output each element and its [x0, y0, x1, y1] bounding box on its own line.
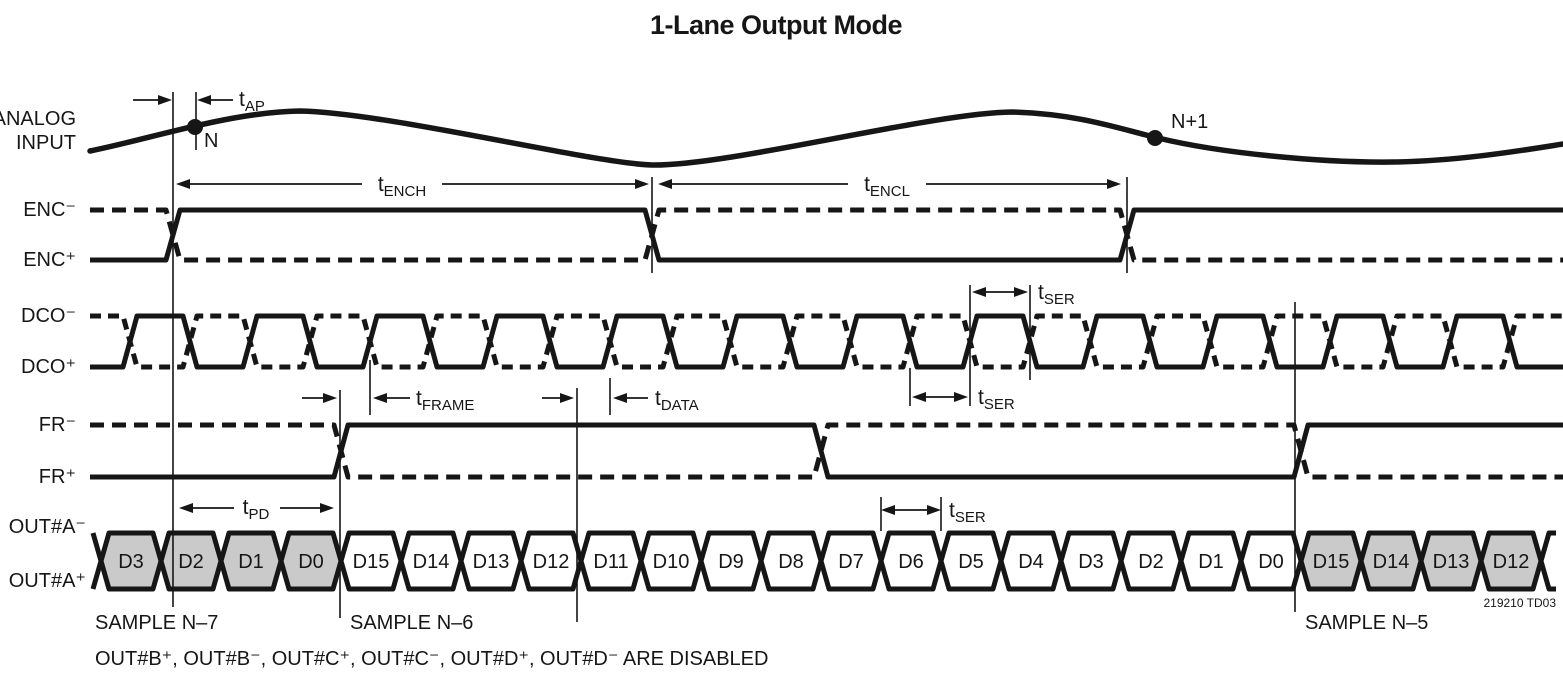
arrowhead-left: [373, 393, 387, 403]
sample-n1-dot: [1147, 130, 1163, 146]
tpd-label: tPD: [243, 496, 270, 523]
out-data-cell-label: D14: [1373, 551, 1410, 573]
tser-lower-annotation: tSER: [912, 386, 1015, 413]
out-lane-cells: D3D2D1D0D15D14D13D12D11D10D9D8D7D6D5D4D3…: [101, 533, 1541, 589]
sample-n6-caption: SAMPLE N–6: [350, 612, 473, 634]
outa-pos-label: OUT#A⁺: [9, 570, 86, 592]
sample-n5-caption: SAMPLE N–5: [1305, 612, 1428, 634]
tencl-annotation: tENCL: [658, 173, 1121, 200]
enc-pos-wave: [90, 210, 1563, 260]
fr-pos-wave: [90, 425, 1563, 477]
out-data-cell-label: D13: [473, 551, 510, 573]
sample-n-label: N: [204, 130, 218, 152]
out-data-cell-label: D2: [1138, 551, 1164, 573]
arrowhead-left: [176, 179, 190, 189]
fr-neg-label: FR⁻: [39, 414, 76, 436]
tap-label: tAP: [239, 88, 265, 115]
tser-upper-annotation: tSER: [972, 281, 1075, 308]
dco-pos-wave: [90, 316, 1563, 367]
tframe-annotation: tFRAME: [302, 387, 474, 414]
tpd-annotation: tPD: [179, 496, 334, 523]
out-data-cell-label: D10: [653, 551, 690, 573]
arrowhead-left: [179, 503, 193, 513]
tdata-label: tDATA: [655, 387, 699, 414]
timing-diagram: 1-Lane Output Mode D3D2D1D0D15D14D13D12D…: [0, 0, 1563, 676]
enc-pos-label: ENC⁺: [23, 249, 76, 271]
timing-diagram-page: 1-Lane Output Mode D3D2D1D0D15D14D13D12D…: [0, 0, 1563, 676]
arrowhead-right: [560, 393, 574, 403]
out-lane-left-tail: [93, 533, 101, 589]
out-data-cell-label: D4: [1018, 551, 1044, 573]
arrowhead-right: [927, 505, 941, 515]
out-data-cell-label: D6: [898, 551, 924, 573]
out-data-cell-label: D0: [298, 551, 324, 573]
arrowhead-left: [972, 287, 986, 297]
analog-input-label-1: ANALOG: [0, 108, 76, 130]
arrowhead-left: [881, 505, 895, 515]
out-data-cell-label: D11: [593, 551, 628, 573]
sample-n7-caption: SAMPLE N–7: [95, 612, 218, 634]
out-data-cell-label: D3: [118, 551, 144, 573]
sample-n1-label: N+1: [1171, 111, 1208, 133]
arrowhead-left: [658, 179, 672, 189]
dco-pos-label: DCO⁺: [21, 356, 76, 378]
tench-annotation: tENCH: [176, 173, 649, 200]
out-data-cell-label: D15: [353, 551, 390, 573]
out-data-cell-label: D5: [958, 551, 984, 573]
arrowhead-right: [1014, 287, 1028, 297]
out-data-cell-label: D0: [1258, 551, 1284, 573]
disabled-outputs-note: OUT#B⁺, OUT#B⁻, OUT#C⁺, OUT#C⁻, OUT#D⁺, …: [95, 648, 768, 670]
out-data-cell-label: D12: [533, 551, 570, 573]
out-data-cell-label: D8: [778, 551, 804, 573]
out-data-cell-label: D1: [238, 551, 264, 573]
tench-label: tENCH: [378, 173, 426, 200]
tser-out-annotation: tSER: [881, 499, 986, 526]
arrowhead-right: [320, 503, 334, 513]
doc-code: 219210 TD03: [1483, 596, 1556, 610]
out-data-cell-label: D12: [1493, 551, 1530, 573]
out-data-cell-label: D15: [1313, 551, 1350, 573]
out-data-cell-label: D1: [1198, 551, 1224, 573]
out-data-cell-label: D2: [178, 551, 204, 573]
enc-neg-label: ENC⁻: [23, 199, 76, 221]
signal-labels: ANALOG INPUT ENC⁻ ENC⁺ DCO⁻ DCO⁺ FR⁻ FR⁺…: [0, 108, 86, 592]
tencl-label: tENCL: [864, 173, 910, 200]
arrowhead-right: [635, 179, 649, 189]
fr-pos-label: FR⁺: [39, 466, 76, 488]
tser-lower-label: tSER: [978, 386, 1015, 413]
arrowhead-right: [1107, 179, 1121, 189]
tser-upper-label: tSER: [1038, 281, 1075, 308]
dco-neg-label: DCO⁻: [21, 305, 76, 327]
outa-neg-label: OUT#A⁻: [9, 516, 86, 538]
out-lane-right-tail: [1541, 533, 1556, 589]
enc-neg-wave: [90, 210, 1563, 260]
out-data-cell-label: D7: [838, 551, 864, 573]
out-data-cell-label: D14: [413, 551, 450, 573]
tser-out-label: tSER: [949, 499, 986, 526]
arrowhead-right: [323, 393, 337, 403]
arrowhead-left: [912, 392, 926, 402]
analog-input-label-2: INPUT: [16, 132, 76, 154]
arrowhead-right: [954, 392, 968, 402]
out-data-cell-label: D9: [718, 551, 744, 573]
arrowhead-left: [613, 393, 627, 403]
analog-input-wave: [90, 111, 1563, 165]
out-data-cell-label: D13: [1433, 551, 1470, 573]
tframe-label: tFRAME: [416, 387, 474, 414]
sample-n-dot: [187, 119, 203, 135]
tdata-annotation: tDATA: [542, 387, 699, 414]
out-data-cell-label: D3: [1078, 551, 1104, 573]
arrowhead-left: [197, 95, 211, 105]
arrowhead-right: [158, 95, 172, 105]
tap-annotation: tAP: [133, 88, 265, 115]
diagram-title: 1-Lane Output Mode: [650, 10, 902, 40]
